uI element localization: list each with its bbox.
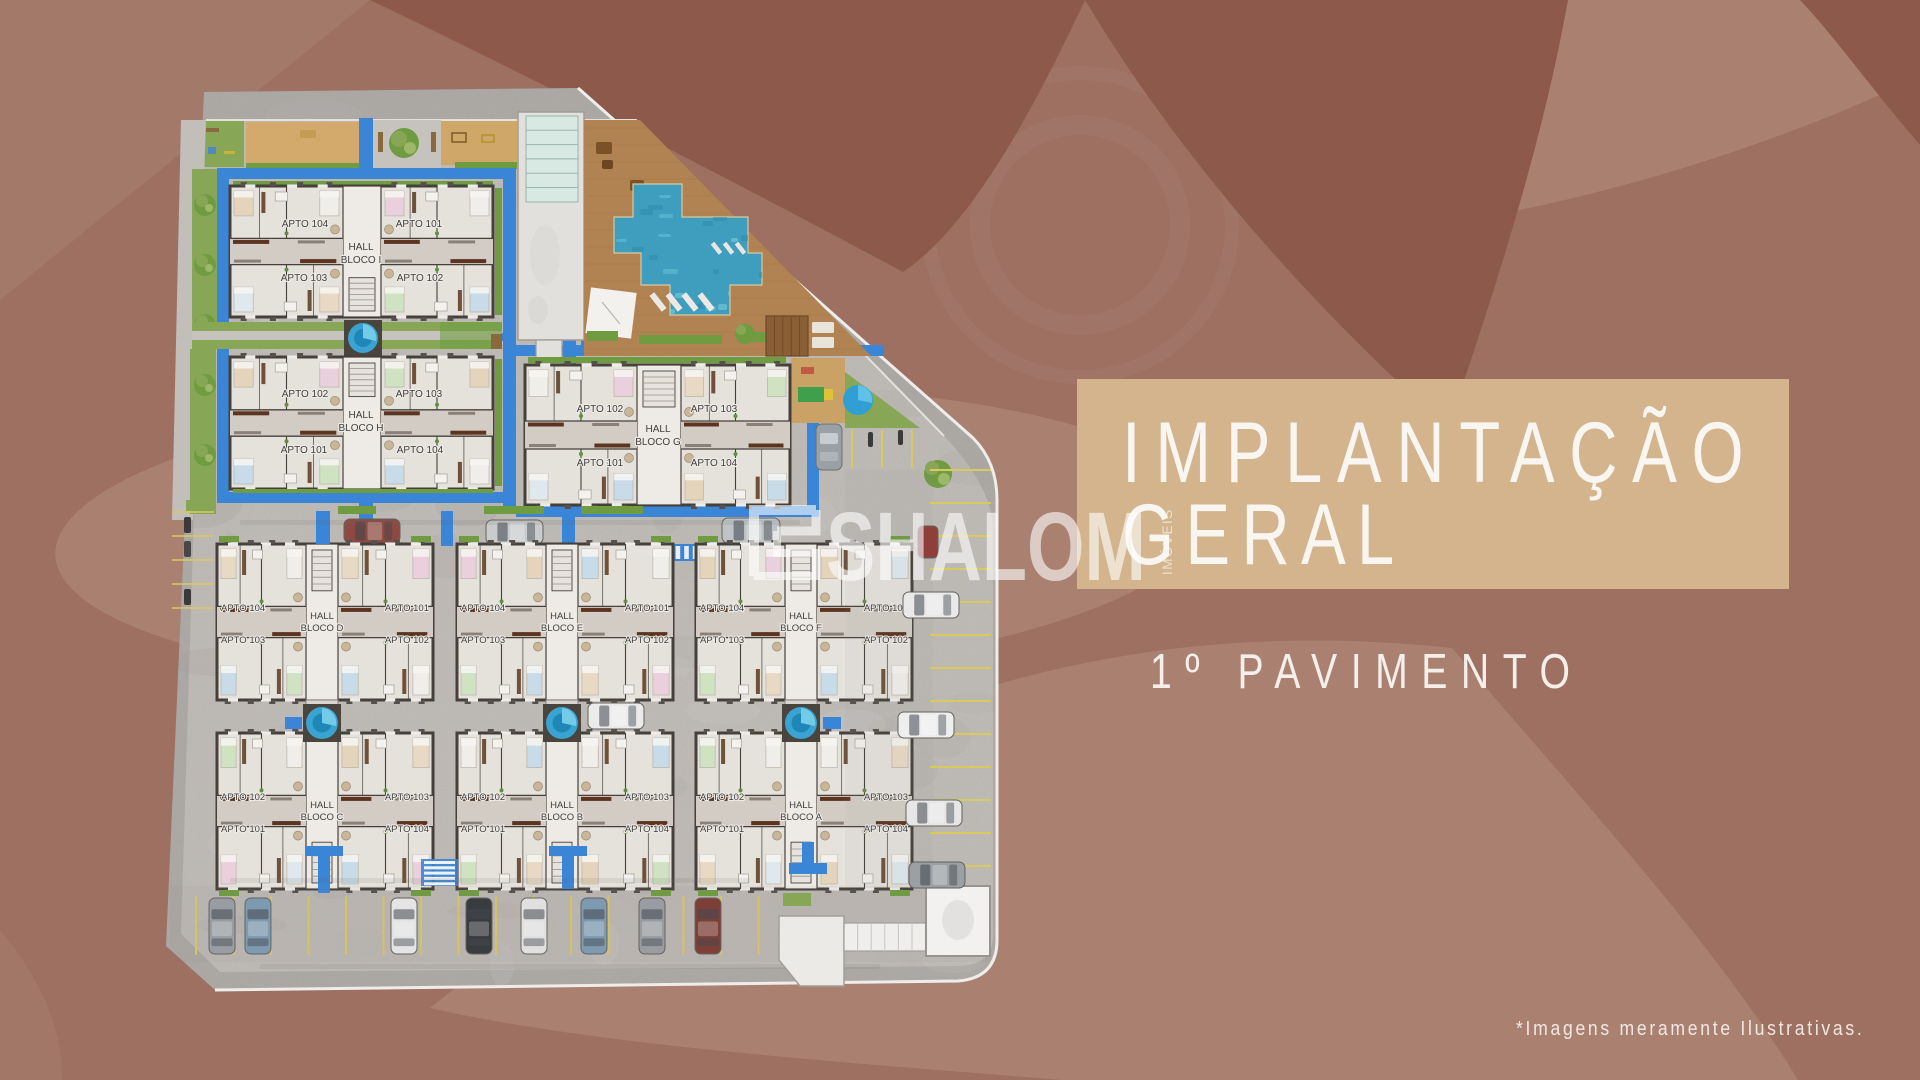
svg-text:APTO 102: APTO 102 [221,792,265,803]
svg-text:APTO 103: APTO 103 [700,635,744,646]
svg-text:APTO 104: APTO 104 [221,603,265,614]
svg-text:APTO 102: APTO 102 [385,635,429,646]
svg-text:HALL: HALL [348,410,373,421]
svg-text:APTO 101: APTO 101 [281,445,328,456]
svg-text:APTO 102: APTO 102 [577,404,624,415]
svg-text:APTO 101: APTO 101 [385,603,429,614]
svg-text:BLOCO B: BLOCO B [541,812,583,823]
svg-text:APTO 103: APTO 103 [281,273,328,284]
svg-text:APTO 101: APTO 101 [221,824,265,835]
svg-text:APTO 103: APTO 103 [461,635,505,646]
svg-text:HALL: HALL [550,611,574,622]
svg-text:APTO 101: APTO 101 [396,219,443,230]
svg-text:APTO 104: APTO 104 [625,824,669,835]
svg-text:1º PAVIMENTO: 1º PAVIMENTO [1150,645,1570,699]
svg-text:APTO 104: APTO 104 [691,458,738,469]
svg-text:IMÓVEIS: IMÓVEIS [1160,508,1175,575]
svg-text:APTO 102: APTO 102 [397,273,444,284]
svg-text:BLOCO C: BLOCO C [301,812,344,823]
svg-text:HALL: HALL [645,424,670,435]
svg-text:BLOCO I: BLOCO I [341,255,382,266]
svg-text:APTO 104: APTO 104 [700,603,744,614]
svg-text:*Imagens meramente Ilustrativa: *Imagens meramente Ilustrativas. [1516,1017,1862,1039]
svg-text:APTO 101: APTO 101 [577,458,624,469]
svg-text:BLOCO D: BLOCO D [301,623,344,634]
svg-text:BLOCO E: BLOCO E [541,623,583,634]
svg-text:APTO 101: APTO 101 [461,824,505,835]
svg-text:HALL: HALL [348,242,373,253]
svg-text:APTO 103: APTO 103 [385,792,429,803]
svg-text:APTO 103: APTO 103 [625,792,669,803]
svg-text:APTO 102: APTO 102 [282,389,329,400]
svg-text:HALL: HALL [789,800,813,811]
svg-text:HALL: HALL [789,611,813,622]
svg-text:APTO 104: APTO 104 [282,219,329,230]
svg-text:APTO 102: APTO 102 [625,635,669,646]
svg-text:APTO 101: APTO 101 [700,824,744,835]
svg-text:APTO 103: APTO 103 [221,635,265,646]
svg-text:SHALOM: SHALOM [826,493,1146,601]
svg-text:APTO 103: APTO 103 [691,404,738,415]
svg-text:APTO 102: APTO 102 [700,792,744,803]
svg-text:APTO 101: APTO 101 [625,603,669,614]
svg-text:APTO 104: APTO 104 [385,824,429,835]
svg-text:BLOCO H: BLOCO H [338,423,383,434]
svg-text:HALL: HALL [550,800,574,811]
svg-text:HALL: HALL [310,611,334,622]
svg-text:APTO 104: APTO 104 [461,603,505,614]
svg-text:BLOCO A: BLOCO A [780,812,822,823]
svg-text:HALL: HALL [310,800,334,811]
svg-text:BLOCO G: BLOCO G [635,437,681,448]
svg-text:APTO 104: APTO 104 [397,445,444,456]
svg-text:BLOCO F: BLOCO F [780,623,822,634]
svg-text:APTO 102: APTO 102 [461,792,505,803]
svg-text:APTO 103: APTO 103 [396,389,443,400]
